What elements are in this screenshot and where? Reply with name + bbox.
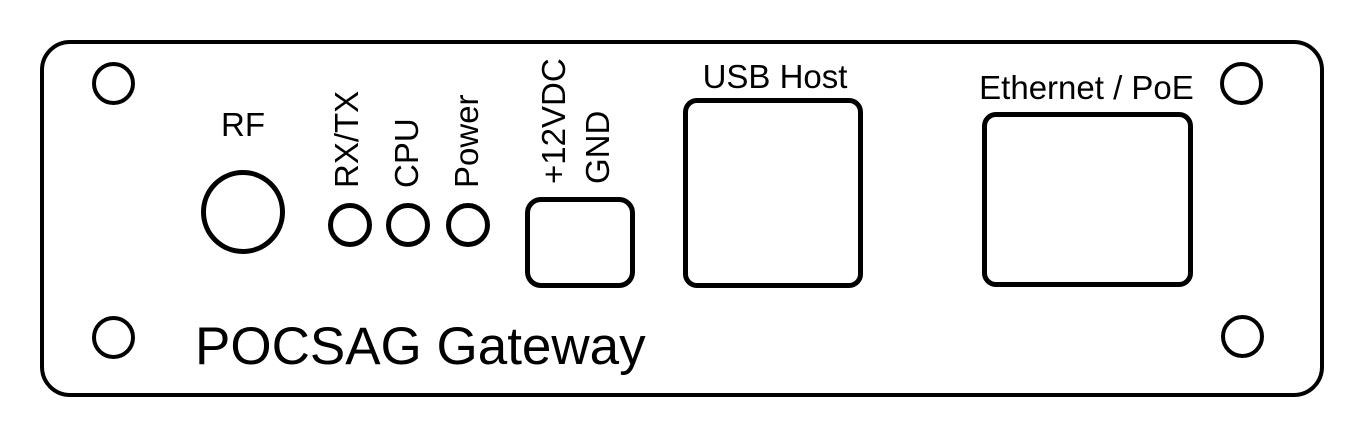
led-rxtx-label: RX/TX [329,91,365,188]
panel-title: POCSAG Gateway [195,318,646,376]
usb-host-connector [683,98,863,288]
mounting-hole-bottom-right [1221,315,1264,358]
mounting-hole-bottom-left [92,316,135,359]
usb-host-label: USB Host [675,59,875,95]
led-rxtx [328,203,372,247]
rf-connector [201,170,285,254]
power-ground-label: GND [580,111,616,184]
ethernet-poe-label: Ethernet / PoE [966,70,1207,106]
mounting-hole-top-left [92,62,135,105]
rf-label: RF [143,107,343,143]
mounting-hole-top-right [1220,62,1263,105]
ethernet-poe-connector [982,112,1193,287]
led-power [446,203,490,247]
power-connector [525,197,635,288]
power-positive-label: +12VDC [536,58,572,184]
led-cpu-label: CPU [389,118,425,188]
panel-diagram: RF RX/TX CPU Power +12VDC GND USB Host E… [0,0,1357,442]
led-cpu [386,203,430,247]
led-power-label: Power [449,94,485,188]
